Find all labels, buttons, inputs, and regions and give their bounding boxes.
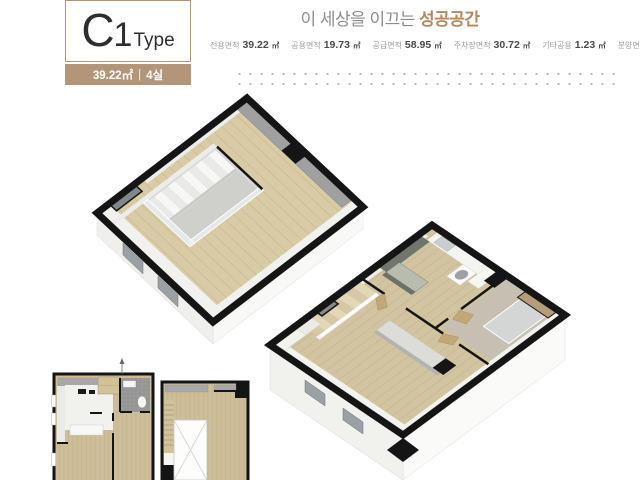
stove	[78, 389, 86, 394]
area-spec-line: 전용면적39.22㎡ 공용면적19.73㎡ 공급면적58.95㎡ 주차장면적30…	[210, 39, 640, 51]
unit-area-value: 39.22㎡	[93, 67, 133, 83]
2d-floor-plans	[50, 355, 260, 480]
spec-item: 전용면적39.22㎡	[210, 39, 279, 51]
entry-arrow-icon	[120, 358, 125, 364]
unit-type-letter: C	[81, 7, 113, 53]
floorplan-brochure-page: C1Type 39.22㎡ | 4실 이 세상을 이끄는성공공간 전용면적39.…	[0, 0, 640, 480]
spec-item: 주차장면적30.72㎡	[454, 39, 531, 51]
counter-island	[70, 425, 103, 435]
stair-landing	[164, 453, 174, 465]
2d-plan-level1	[52, 358, 153, 480]
spec-item: 기타공용1.23㎡	[542, 39, 605, 51]
window	[52, 453, 56, 466]
unit-type-number: 1	[114, 18, 133, 52]
wall-step	[236, 382, 248, 398]
wall-band	[57, 386, 65, 443]
window	[52, 395, 56, 407]
decorative-dot-grid	[232, 66, 616, 86]
slogan: 이 세상을 이끄는성공공간	[250, 5, 530, 30]
unit-area-bar: 39.22㎡ | 4실	[65, 64, 191, 85]
isometric-plan-lower-floor	[250, 210, 580, 480]
divider: |	[138, 69, 141, 81]
spec-item: 공급면적58.95㎡	[372, 39, 441, 51]
balcony-band	[58, 378, 98, 386]
balcony-band	[165, 385, 208, 392]
wall-block	[163, 465, 174, 480]
unit-type-badge: C1Type	[65, 0, 191, 62]
toilet	[138, 396, 147, 408]
bathroom-sink	[123, 381, 136, 388]
window	[52, 413, 56, 425]
unit-room-count: 4실	[146, 67, 163, 83]
slogan-prefix: 이 세상을 이끄는	[301, 10, 415, 29]
spec-item: 분양면적90.91㎡	[618, 39, 640, 51]
slogan-highlight: 성공공간	[419, 10, 480, 29]
unit-type-word: Type	[133, 31, 174, 50]
2d-plan-level2	[162, 382, 248, 480]
stove	[89, 390, 95, 394]
spec-item: 공용면적19.73㎡	[291, 39, 360, 51]
